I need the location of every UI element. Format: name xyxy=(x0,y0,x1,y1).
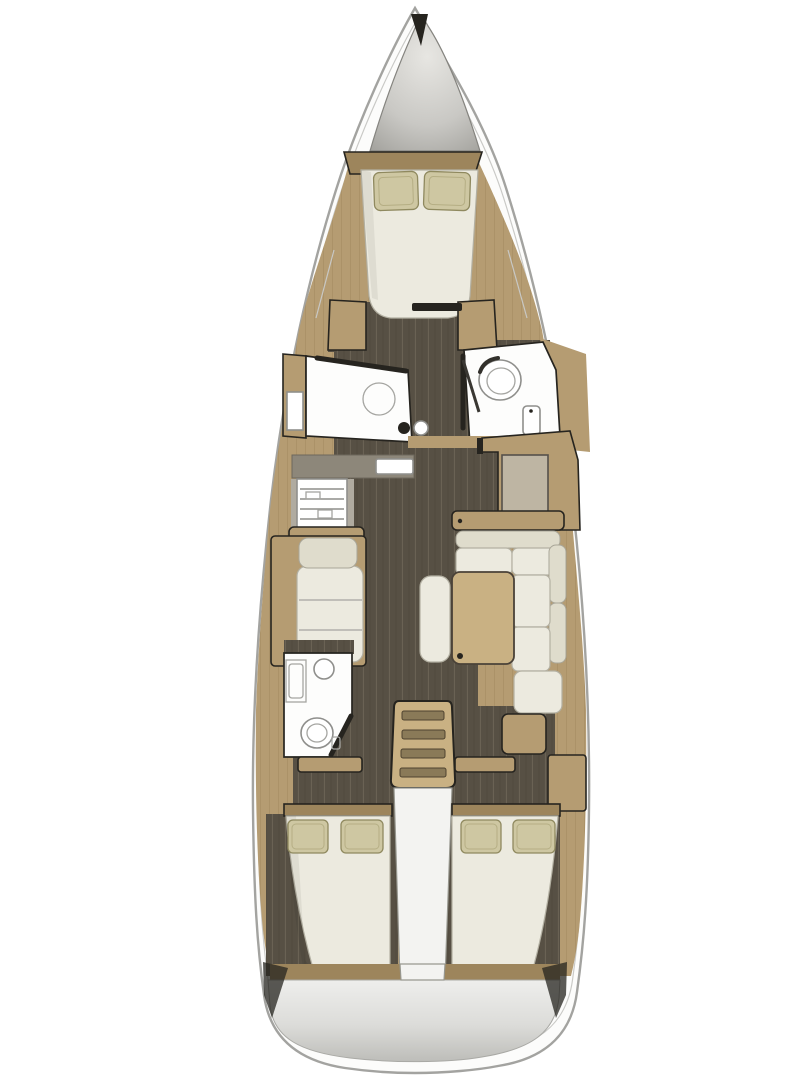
sofa-seat-right-b xyxy=(512,627,550,671)
sofa-back-shelf xyxy=(452,511,564,530)
aft-starboard-headboard xyxy=(452,804,560,816)
stair-tread-4 xyxy=(400,768,446,777)
galley-sink xyxy=(376,459,413,474)
stove-gimbal-right xyxy=(347,479,354,529)
pillow xyxy=(288,820,328,853)
transom xyxy=(263,962,567,1062)
compression-post xyxy=(414,421,428,435)
sofa-back-bolster-right-b xyxy=(549,603,566,663)
aft-starboard-cabinet xyxy=(548,755,586,811)
aft-head-washbasin xyxy=(314,659,334,679)
sofa-back-bolster-top xyxy=(456,531,560,548)
chart-area-threshold xyxy=(477,438,483,454)
sofa-seat-top-a xyxy=(456,548,512,575)
salon-bench xyxy=(420,576,450,662)
table-leg xyxy=(457,653,463,659)
stair-tread-3 xyxy=(401,749,445,758)
yacht-layout-plan xyxy=(0,0,810,1080)
stair-tread-2 xyxy=(402,730,445,739)
chart-desk-surface xyxy=(502,455,548,513)
engine-box-divider xyxy=(394,788,452,980)
companionway xyxy=(391,701,455,980)
aft-cabin-port xyxy=(284,804,392,972)
pillow xyxy=(513,820,555,853)
stair-tread-1 xyxy=(402,711,444,720)
engine-box-stern-end xyxy=(400,964,445,980)
pillow xyxy=(461,820,501,853)
aft-cabin-port-threshold xyxy=(298,757,362,772)
forward-cabin-door-threshold xyxy=(412,303,462,311)
basin-faucet xyxy=(529,409,533,413)
settee-back-bolster xyxy=(299,538,357,568)
aft-cabin-starboard-threshold xyxy=(455,757,515,772)
forward-foot-cabinet-port xyxy=(328,300,366,350)
sofa-end-cushion xyxy=(514,671,562,713)
shelf-fitting xyxy=(458,519,462,523)
sofa-back-bolster-right-a xyxy=(549,545,566,603)
sofa-seat-right-a xyxy=(512,575,550,627)
aft-head-toilet xyxy=(301,718,333,748)
pillow xyxy=(341,820,383,853)
stove-gimbal-left xyxy=(291,479,297,529)
aft-head-top-shadow xyxy=(284,640,354,654)
shower-cabinet-mirror xyxy=(287,392,303,430)
saloon-table xyxy=(452,572,514,664)
sofa-end-step xyxy=(502,714,546,754)
yacht-floor-plan-canvas xyxy=(0,0,810,1080)
shower-drain-fitting xyxy=(398,422,410,434)
galley-stove xyxy=(297,479,347,529)
aft-port-headboard xyxy=(284,804,392,816)
forward-foot-cabinet-starboard xyxy=(458,300,497,350)
